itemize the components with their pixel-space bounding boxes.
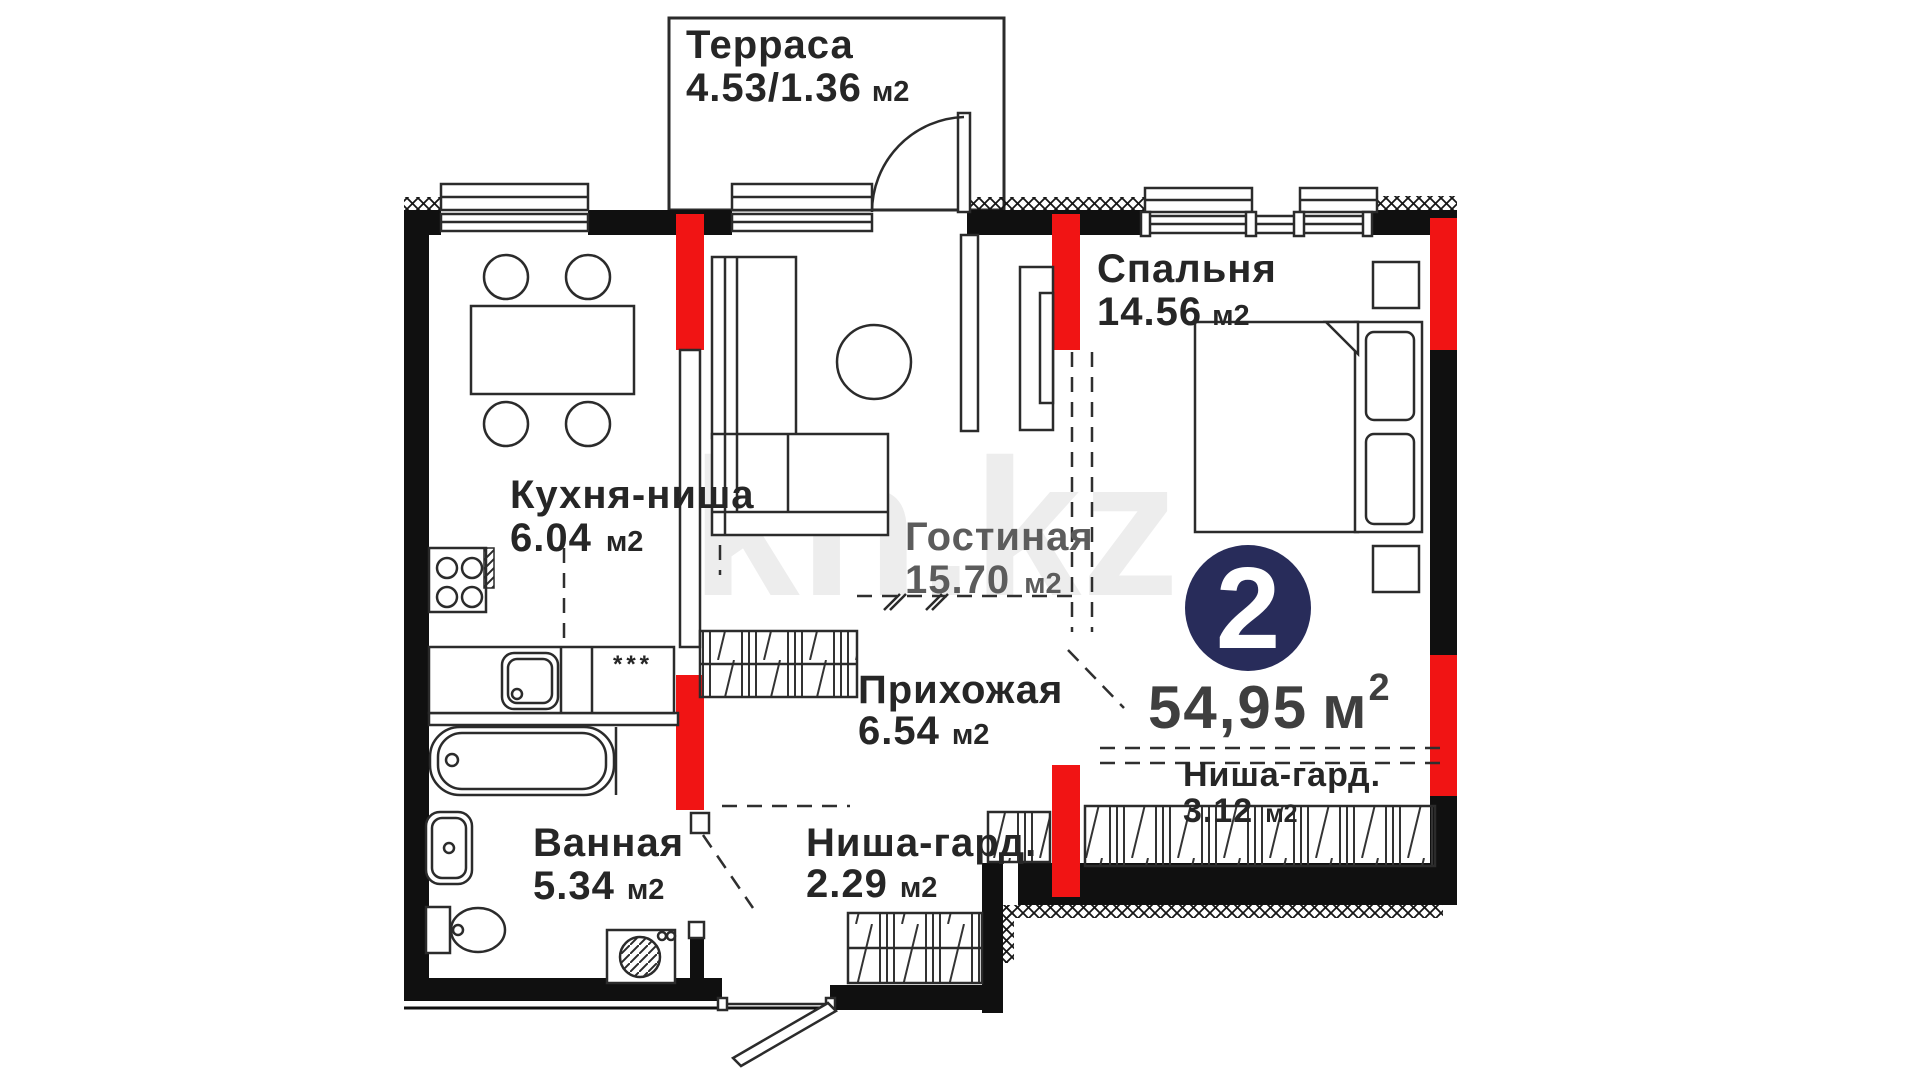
svg-text:Прихожая: Прихожая (858, 668, 1063, 712)
red-segment-top-left (676, 214, 704, 350)
nightstand-top (1373, 262, 1419, 308)
terrace-door-leaf (958, 113, 970, 212)
wall-right-upper (1430, 350, 1457, 655)
toilet-bowl (451, 908, 505, 952)
wall-top-kitchen-living (588, 210, 732, 235)
wall-bottom-mid (830, 985, 1002, 1010)
stove-side-panel (484, 548, 494, 588)
toilet-tank (426, 907, 450, 953)
counter-marks: *** (613, 651, 653, 678)
dining-chair (566, 402, 610, 446)
wardrobe-niche-312 (1085, 806, 1435, 866)
red-segment-right-top (1430, 218, 1457, 350)
partition-living-bedroom (961, 235, 978, 431)
svg-text:Терраса: Терраса (686, 23, 854, 67)
red-segment-right-middle (1430, 655, 1457, 796)
partition-bath-top (429, 713, 678, 725)
wall-left (404, 210, 429, 1001)
wall-bottom-right (1018, 863, 1457, 905)
badge-rooms-count: 2 (1216, 543, 1281, 673)
dining-chair (566, 255, 610, 299)
red-segment-top-middle (1052, 214, 1080, 350)
bath-door-frame-bottom (689, 922, 704, 938)
floor-plan-svg: kn.kz (0, 0, 1920, 1080)
bath-door-frame-top (691, 813, 709, 833)
total-area: 54,95м2 (1148, 667, 1392, 741)
wall-bath-door-stub (690, 938, 704, 978)
dining-chair (484, 255, 528, 299)
washing-machine-drum (621, 938, 659, 976)
svg-text:Ниша-гард.: Ниша-гард. (1183, 756, 1381, 794)
floor-plan-page: kn.kz (0, 0, 1920, 1080)
wall-top-corner (404, 210, 441, 235)
svg-text:Спальня: Спальня (1097, 247, 1277, 291)
dining-chair (484, 402, 528, 446)
bed-pillow (1366, 332, 1414, 420)
svg-text:Ниша-гард.: Ниша-гард. (806, 821, 1037, 865)
bed-pillow (1366, 434, 1414, 524)
room-label-bathroom: Ванная 5.34м2 (533, 821, 684, 908)
nightstand-bottom (1373, 546, 1419, 592)
dining-table (471, 306, 634, 394)
svg-text:Кухня-ниша: Кухня-ниша (510, 473, 755, 517)
svg-text:Гостиная: Гостиная (905, 515, 1094, 559)
bed-mattress (1195, 322, 1358, 532)
red-segment-bottom-middle (1052, 765, 1080, 897)
svg-text:Ванная: Ванная (533, 821, 684, 865)
coffee-table (837, 325, 911, 399)
